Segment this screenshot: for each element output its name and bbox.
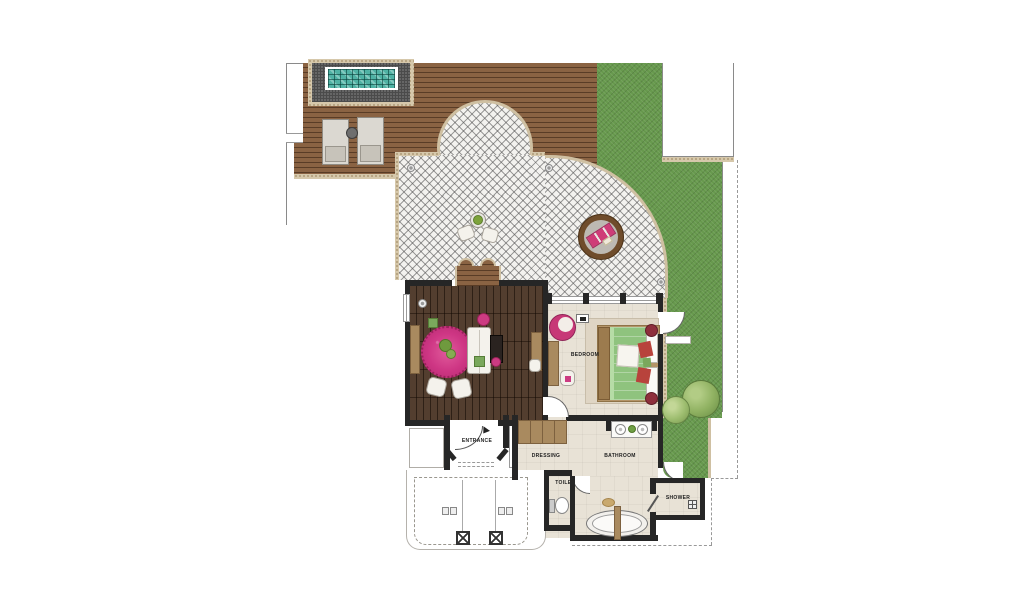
property-line [737,160,738,478]
porch-vent [450,507,457,515]
terrace-spotlight [657,278,665,286]
toilet-label: TOILET [550,481,580,486]
deck-bottom-border [294,174,400,179]
shower-drain [688,500,697,509]
porch-post-line [462,480,463,531]
wall [658,296,663,312]
accent-cushion [636,367,651,384]
bedroom-desk [548,341,559,386]
lounger-cushion [325,146,346,162]
living-window [403,294,410,322]
porch-post-line [495,480,496,531]
bedroom-chair [560,370,575,386]
garden-right-edge [722,162,723,412]
window-post [620,293,626,304]
ottoman [645,392,658,405]
porch-column [456,531,470,545]
garden-tree [662,396,690,424]
wall-tv [576,314,589,323]
table-plant [473,215,483,225]
terrace-border-top-a [395,152,439,156]
wall [652,420,657,431]
tv-screen [580,317,586,321]
property-line [711,478,738,479]
boundary-left-line [286,63,287,225]
wall [444,415,450,470]
vanity-plant [628,425,636,433]
ottoman [645,324,658,337]
lounger-cushion [360,145,381,162]
terrace-spotlight [407,164,415,172]
wall [655,515,705,520]
walkway [286,133,303,143]
bath-caddy [614,506,621,540]
floor-plant [446,349,456,359]
papasan-cushion [558,317,573,332]
sun-deck-step [294,143,303,178]
terrace-border-top-b [531,152,545,156]
sun-lounger [322,119,349,165]
accent-cushion-green [643,358,652,368]
floor-plan: BEDROOM ENTRANCE DRESSING BATHROOM TOILE… [0,0,1020,612]
vanity-sink [615,424,626,435]
accent-cushion [638,341,654,358]
pink-pouf [477,313,490,326]
bedroom-window-band [548,296,658,304]
neighbor-cutout [662,63,734,157]
dressing-label: DRESSING [524,454,568,459]
toilet-bowl [555,497,569,514]
bathroom-label: BATHROOM [598,454,642,459]
porch-column [489,531,503,545]
hall-dash [458,466,494,467]
wall [405,280,452,286]
ceiling-light [418,299,427,308]
swimming-pool [328,69,395,88]
landing-step [455,266,501,288]
chair-accent [565,376,571,382]
porch-vent [506,507,513,515]
wall [658,420,663,468]
porch-vent [498,507,505,515]
throw-pillow [616,344,639,367]
terrace-dome-joint [440,155,530,195]
wall [570,476,575,540]
bed-bench [598,327,610,400]
terrace-spotlight [545,164,553,172]
porch-niche-left [409,428,444,468]
property-line [711,478,712,545]
wall [405,280,410,294]
terrace-border-left [395,152,399,280]
vanity-sink [637,424,648,435]
desk-chair [529,359,541,372]
sideboard [410,325,420,374]
wall [499,280,548,286]
entrance-label: ENTRANCE [457,439,497,444]
bedroom-label: BEDROOM [567,353,603,358]
pink-pouf [491,357,501,367]
wall [503,415,509,448]
wall [650,478,705,483]
garden-border-strip [662,157,734,162]
wall [405,420,447,426]
porch-vent [442,507,449,515]
bath-mat [602,498,615,507]
property-line [572,545,712,546]
wardrobe [518,420,567,444]
garden-step-slab [665,336,691,344]
green-side-cube [428,318,438,328]
sun-lounger [357,117,384,165]
deck-side-table [346,127,358,139]
green-tray [474,356,485,367]
window-post [545,293,552,304]
wall [700,478,705,520]
hall-dash [458,462,494,463]
wall [405,322,410,420]
window-post [583,293,589,304]
